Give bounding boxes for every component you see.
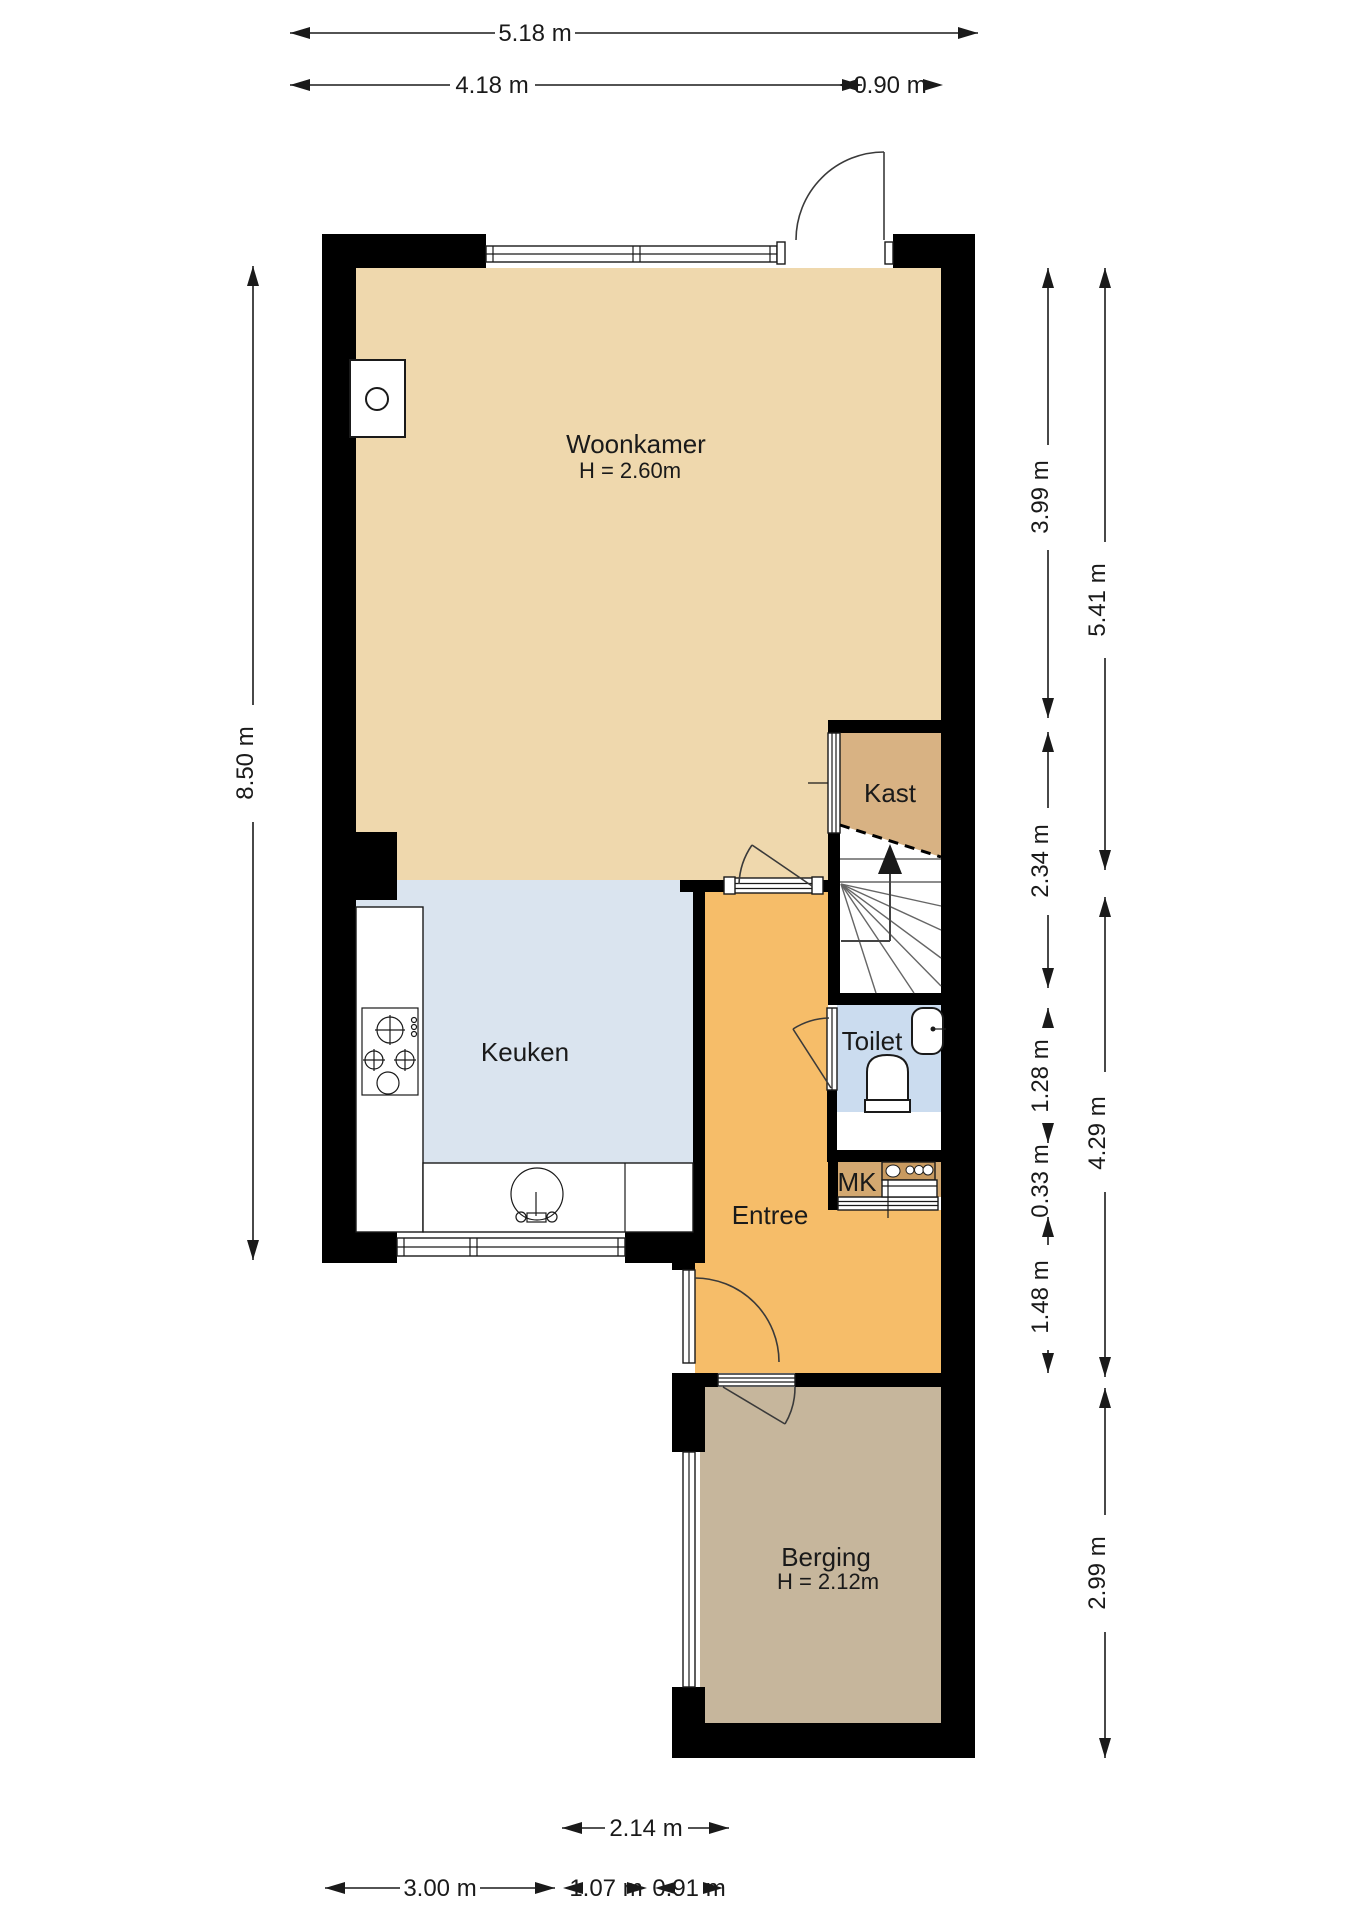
- wall-berging-bottom: [672, 1723, 975, 1758]
- wall-left-jog: [356, 832, 397, 900]
- dim-right-toilet: 1.28 m: [1027, 1039, 1054, 1112]
- wall-kast-top: [828, 720, 941, 733]
- wall-keuken-bottom-right: [625, 1232, 705, 1263]
- wall-mk-left: [828, 1162, 838, 1210]
- toilet-label: Toilet: [842, 1026, 903, 1056]
- dim-bottom-door: 0.91 m: [652, 1875, 725, 1902]
- stove-icon: [350, 360, 405, 437]
- dim-right-outer-upper: 5.41 m: [1084, 563, 1111, 636]
- wall-top-left: [322, 234, 486, 268]
- wall-keuken-bottom-left: [322, 1232, 397, 1263]
- wall-toilet-left: [827, 1090, 837, 1150]
- toilet-floor-white: [837, 1112, 941, 1150]
- dim-right-mk: 0.33 m: [1027, 1144, 1054, 1217]
- berging-height-label: H = 2.12m: [777, 1569, 879, 1594]
- berging-label: Berging: [781, 1542, 871, 1572]
- entree-floor-south: [695, 1263, 941, 1373]
- wall-keuken-entree: [693, 880, 705, 1232]
- dim-right-woonkamer: 3.99 m: [1027, 460, 1054, 533]
- dim-top-total: 5.18 m: [498, 20, 571, 47]
- woonkamer-height-label: H = 2.60m: [579, 458, 681, 483]
- floor-plan: 5.18 m 4.18 m 0.90 m 8.50 m 3.99 m 2.34 …: [0, 0, 1358, 1920]
- keuken-label: Keuken: [481, 1037, 569, 1067]
- dim-bottom-entree: 1.07 m: [569, 1875, 642, 1902]
- mk-label: MK: [838, 1167, 878, 1197]
- wall-berging-west-corner: [672, 1687, 705, 1723]
- wall-toilet-top: [828, 993, 941, 1005]
- dim-right-outer-berging: 2.99 m: [1084, 1536, 1111, 1609]
- wall-stairs-left: [828, 833, 840, 1005]
- dim-left-total: 8.50 m: [232, 726, 259, 799]
- woonkamer-label: Woonkamer: [566, 429, 706, 459]
- entrance-door-top: [777, 152, 893, 264]
- wall-toilet-bottom: [827, 1150, 975, 1162]
- wash-basin-icon: [912, 1008, 946, 1054]
- dim-right-kast-stairs: 2.34 m: [1027, 824, 1054, 897]
- toilet-bowl-icon: [865, 1055, 910, 1112]
- wall-entree-west-stub: [672, 1262, 695, 1270]
- kast-label: Kast: [864, 778, 917, 808]
- window-woonkamer-top: [486, 246, 777, 262]
- dim-right-outer-middle: 4.29 m: [1084, 1096, 1111, 1169]
- wall-right-exterior: [941, 234, 975, 1758]
- entree-label: Entree: [732, 1200, 809, 1230]
- dim-right-entree: 1.48 m: [1027, 1260, 1054, 1333]
- wall-berging-top-left: [695, 1373, 718, 1387]
- window-keuken-bottom: [397, 1238, 625, 1256]
- window-berging-left: [683, 1452, 695, 1687]
- dim-bottom-keuken: 3.00 m: [403, 1875, 476, 1902]
- dim-bottom-berging: 2.14 m: [609, 1815, 682, 1842]
- dim-top-left-part: 4.18 m: [455, 72, 528, 99]
- wall-berging-top-right: [795, 1373, 941, 1387]
- dim-top-right-part: 0.90 m: [853, 72, 926, 99]
